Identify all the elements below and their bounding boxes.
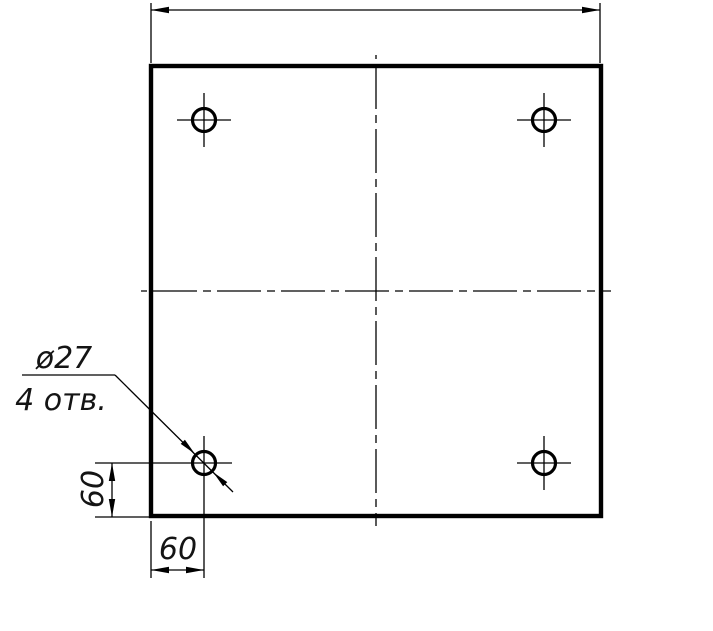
leader-callout: ø27 4 отв. — [15, 341, 233, 492]
leader-arrow-lower — [213, 472, 227, 486]
left-dim-label: 60 — [76, 470, 111, 508]
top-dimension — [151, 3, 600, 63]
bottom-dim-label: 60 — [159, 532, 197, 567]
top-dim-arrow-right — [582, 7, 600, 13]
hole-diameter-label: ø27 — [35, 341, 93, 376]
bottom-dim-arrow-right — [186, 567, 204, 573]
leader-arrow-upper — [181, 440, 195, 454]
hole-crosshairs — [95, 93, 571, 578]
hole-count-label: 4 отв. — [15, 383, 107, 418]
drawing-canvas: 60 60 ø27 4 отв. — [0, 0, 713, 631]
bottom-dim-arrow-left — [151, 567, 169, 573]
left-dimension: 60 — [76, 463, 152, 517]
technical-drawing: 60 60 ø27 4 отв. — [0, 0, 713, 631]
top-dim-arrow-left — [151, 7, 169, 13]
bottom-dimension: 60 — [151, 521, 204, 578]
